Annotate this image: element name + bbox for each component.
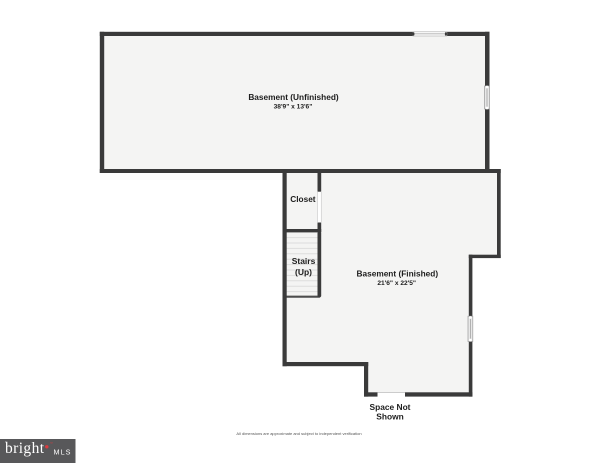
svg-text:All dimensions are approximate: All dimensions are approximate and subje…: [236, 431, 361, 436]
svg-text:bright: bright: [5, 440, 45, 457]
svg-text:Basement (Finished): Basement (Finished): [356, 269, 438, 279]
svg-text:(Up): (Up): [295, 267, 312, 277]
svg-text:Stairs: Stairs: [292, 256, 316, 266]
svg-text:™: ™: [50, 442, 53, 446]
svg-text:21'6" x 22'5": 21'6" x 22'5": [377, 280, 416, 287]
svg-text:38'9" x 13'6": 38'9" x 13'6": [274, 104, 313, 111]
svg-text:Closet: Closet: [290, 194, 316, 204]
svg-text:Basement (Unfinished): Basement (Unfinished): [248, 92, 339, 102]
svg-text:Shown: Shown: [376, 411, 403, 421]
svg-text:MLS: MLS: [54, 448, 72, 457]
